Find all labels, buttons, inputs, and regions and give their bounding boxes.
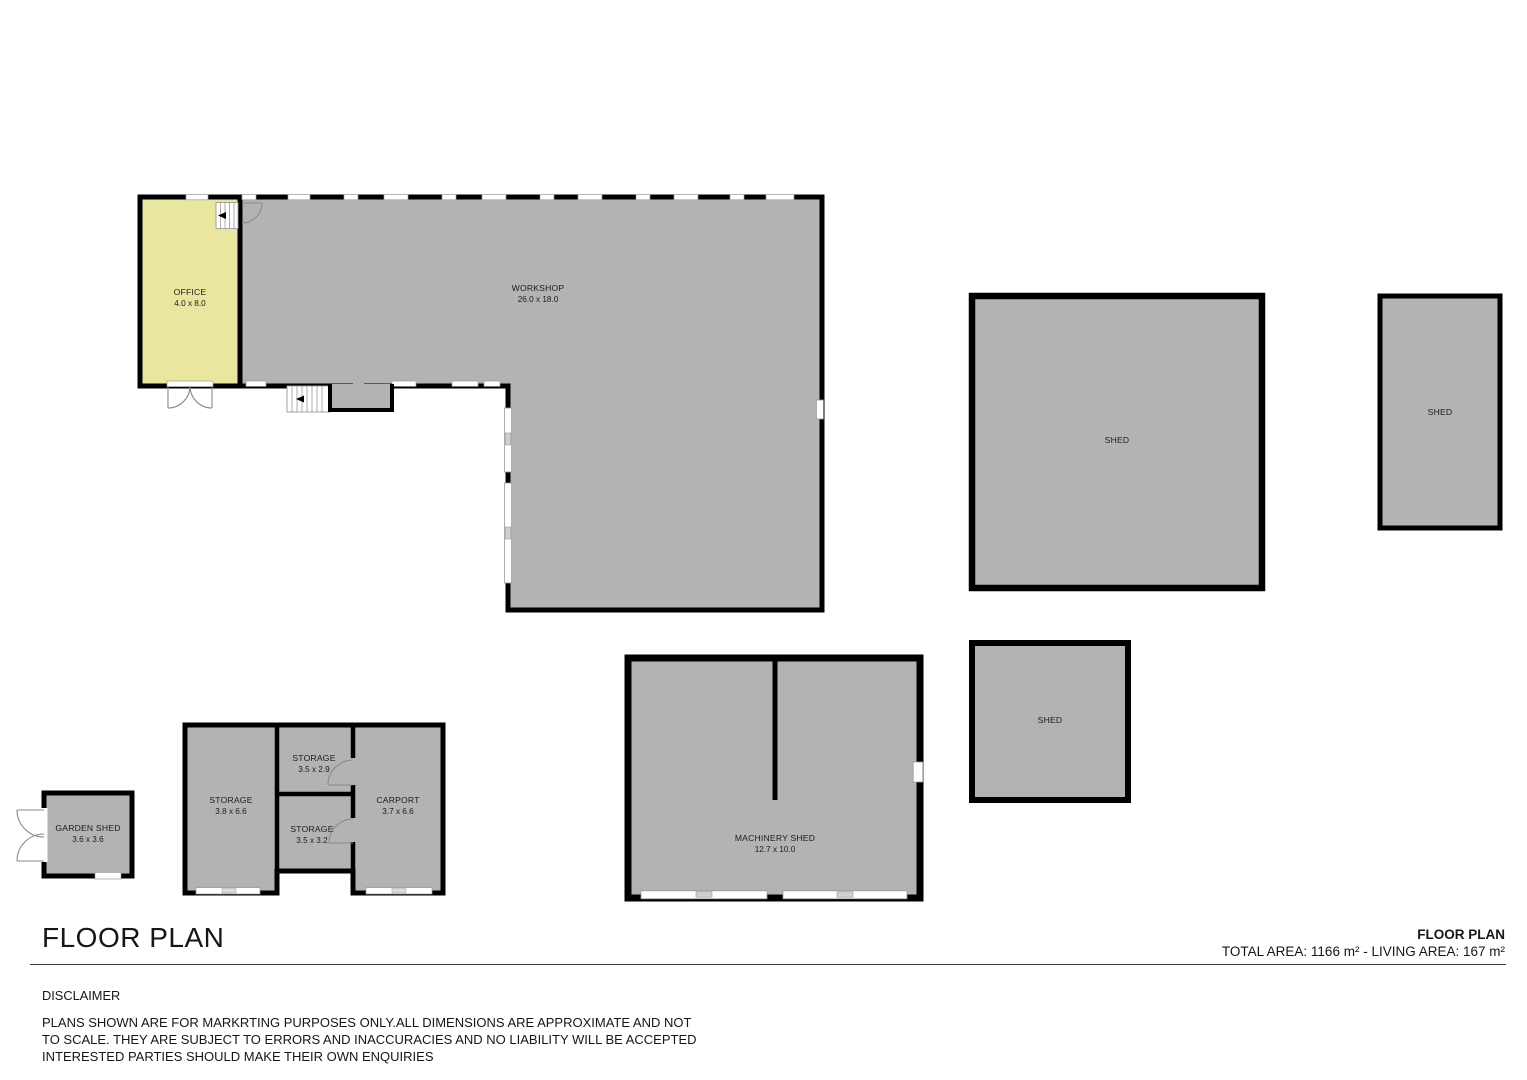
exterior-stairs	[287, 386, 330, 412]
garden-shed-door-opening	[41, 808, 48, 862]
garden-shed-window	[95, 872, 121, 879]
small-shed-label: SHED	[1038, 715, 1063, 725]
garden-shed-building: GARDEN SHED 3.6 x 3.6	[17, 793, 132, 879]
office-stairs	[216, 203, 238, 229]
disclaimer-line: TO SCALE. THEY ARE SUBJECT TO ERRORS AND…	[42, 1031, 697, 1048]
disclaimer-text: PLANS SHOWN ARE FOR MARKRTING PURPOSES O…	[42, 1014, 697, 1065]
plan-summary-heading: FLOOR PLAN	[1222, 927, 1505, 942]
storage-left-label: STORAGE	[209, 795, 252, 805]
workshop-building: OFFICE 4.0 x 8.0 WORKSHOP 26.0 x 18.0	[140, 195, 823, 610]
storage-garage-doors	[196, 888, 432, 894]
storage-carport-building: STORAGE 3.8 x 6.6 STORAGE 3.5 x 2.9 STOR…	[185, 725, 443, 894]
workshop-dims: 26.0 x 18.0	[518, 295, 559, 304]
bump-out-opening	[353, 380, 364, 386]
carport-label: CARPORT	[376, 795, 420, 805]
carport-dims: 3.7 x 6.6	[382, 807, 414, 816]
storage-bottom-door-opening	[350, 818, 355, 842]
footer-divider	[30, 964, 1506, 965]
narrow-shed-building: SHED	[1380, 296, 1500, 528]
disclaimer-line: PLANS SHOWN ARE FOR MARKRTING PURPOSES O…	[42, 1014, 697, 1031]
storage-bottom-dims: 3.5 x 3.2	[296, 836, 328, 845]
storage-top-label: STORAGE	[292, 753, 335, 763]
floor-plan-page: OFFICE 4.0 x 8.0 WORKSHOP 26.0 x 18.0 SH…	[0, 0, 1527, 1080]
machinery-shed-dims: 12.7 x 10.0	[755, 845, 796, 854]
storage-top-door-opening	[350, 758, 355, 785]
page-title: FLOOR PLAN	[42, 922, 224, 954]
machinery-shed-building: MACHINERY SHED 12.7 x 10.0	[628, 658, 923, 899]
narrow-shed-label: SHED	[1428, 407, 1453, 417]
disclaimer-heading: DISCLAIMER	[42, 988, 120, 1003]
large-shed-building: SHED	[972, 296, 1262, 588]
office-entry-double-door	[167, 381, 213, 408]
office-label: OFFICE	[174, 287, 207, 297]
storage-top-dims: 3.5 x 2.9	[298, 765, 330, 774]
workshop-left-roller-doors	[505, 408, 512, 583]
garden-shed-dims: 3.6 x 3.6	[72, 835, 104, 844]
plan-area-summary: TOTAL AREA: 1166 m² - LIVING AREA: 167 m…	[1222, 944, 1505, 959]
large-shed-label: SHED	[1105, 435, 1130, 445]
storage-left-dims: 3.8 x 6.6	[215, 807, 247, 816]
plan-summary: FLOOR PLAN TOTAL AREA: 1166 m² - LIVING …	[1222, 927, 1505, 959]
office-dims: 4.0 x 8.0	[174, 299, 206, 308]
machinery-shed-label: MACHINERY SHED	[735, 833, 815, 843]
workshop-label: WORKSHOP	[512, 283, 565, 293]
machinery-shed-side-door	[913, 762, 923, 782]
workshop-right-window	[816, 400, 823, 419]
small-shed-building: SHED	[972, 643, 1128, 800]
storage-bottom-label: STORAGE	[290, 824, 333, 834]
garden-shed-label: GARDEN SHED	[55, 823, 120, 833]
bump-out-room	[330, 380, 392, 410]
disclaimer-line: INTERESTED PARTIES SHOULD MAKE THEIR OWN…	[42, 1048, 697, 1065]
floor-plan-drawing: OFFICE 4.0 x 8.0 WORKSHOP 26.0 x 18.0 SH…	[0, 0, 1527, 918]
garden-shed-double-door	[17, 810, 44, 861]
